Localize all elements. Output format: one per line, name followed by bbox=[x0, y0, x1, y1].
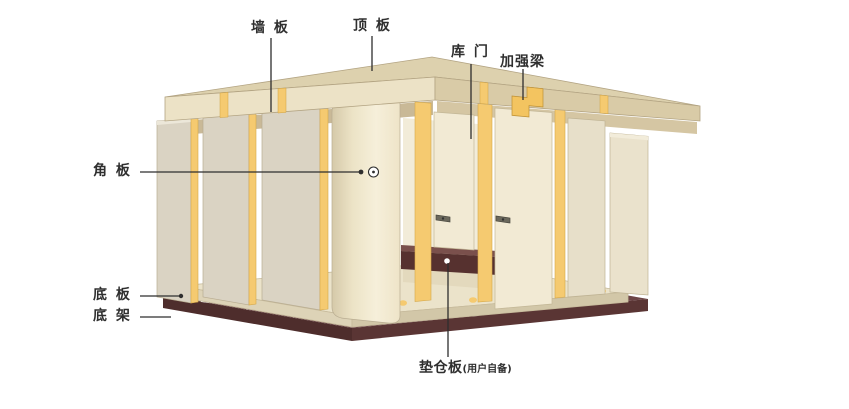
label-wall-panel: 墙 板 bbox=[251, 21, 290, 35]
corner-panel-pointer-dot bbox=[359, 170, 364, 175]
label-bottom-panel: 底 板 bbox=[93, 288, 132, 302]
pallet-pointer-dot bbox=[444, 258, 450, 264]
wall-panels-right-shape bbox=[555, 104, 648, 298]
wall-panels-left-shape bbox=[157, 99, 328, 310]
label-pallet-board: 垫仓板(用户自备) bbox=[419, 361, 512, 375]
label-reinforcement-beam: 加强梁 bbox=[500, 55, 545, 69]
label-pallet-board-note: (用户自备) bbox=[463, 364, 512, 375]
label-top-panel: 顶 板 bbox=[353, 19, 392, 33]
bottom-panel-pointer-dot bbox=[179, 294, 183, 298]
label-pallet-board-main: 垫仓板 bbox=[419, 360, 463, 376]
diagram-canvas bbox=[0, 0, 849, 409]
label-door: 库 门 bbox=[451, 45, 490, 59]
corner-panel-shape bbox=[332, 96, 400, 323]
bottom-frame-pointer-dot bbox=[172, 314, 178, 320]
label-bottom-frame: 底 架 bbox=[93, 309, 132, 323]
cold-room-assembly-diagram: 墙 板 顶 板 库 门 加强梁 角 板 底 板 底 架 垫仓板(用户自备) bbox=[0, 0, 849, 409]
label-corner-panel: 角 板 bbox=[93, 164, 132, 178]
